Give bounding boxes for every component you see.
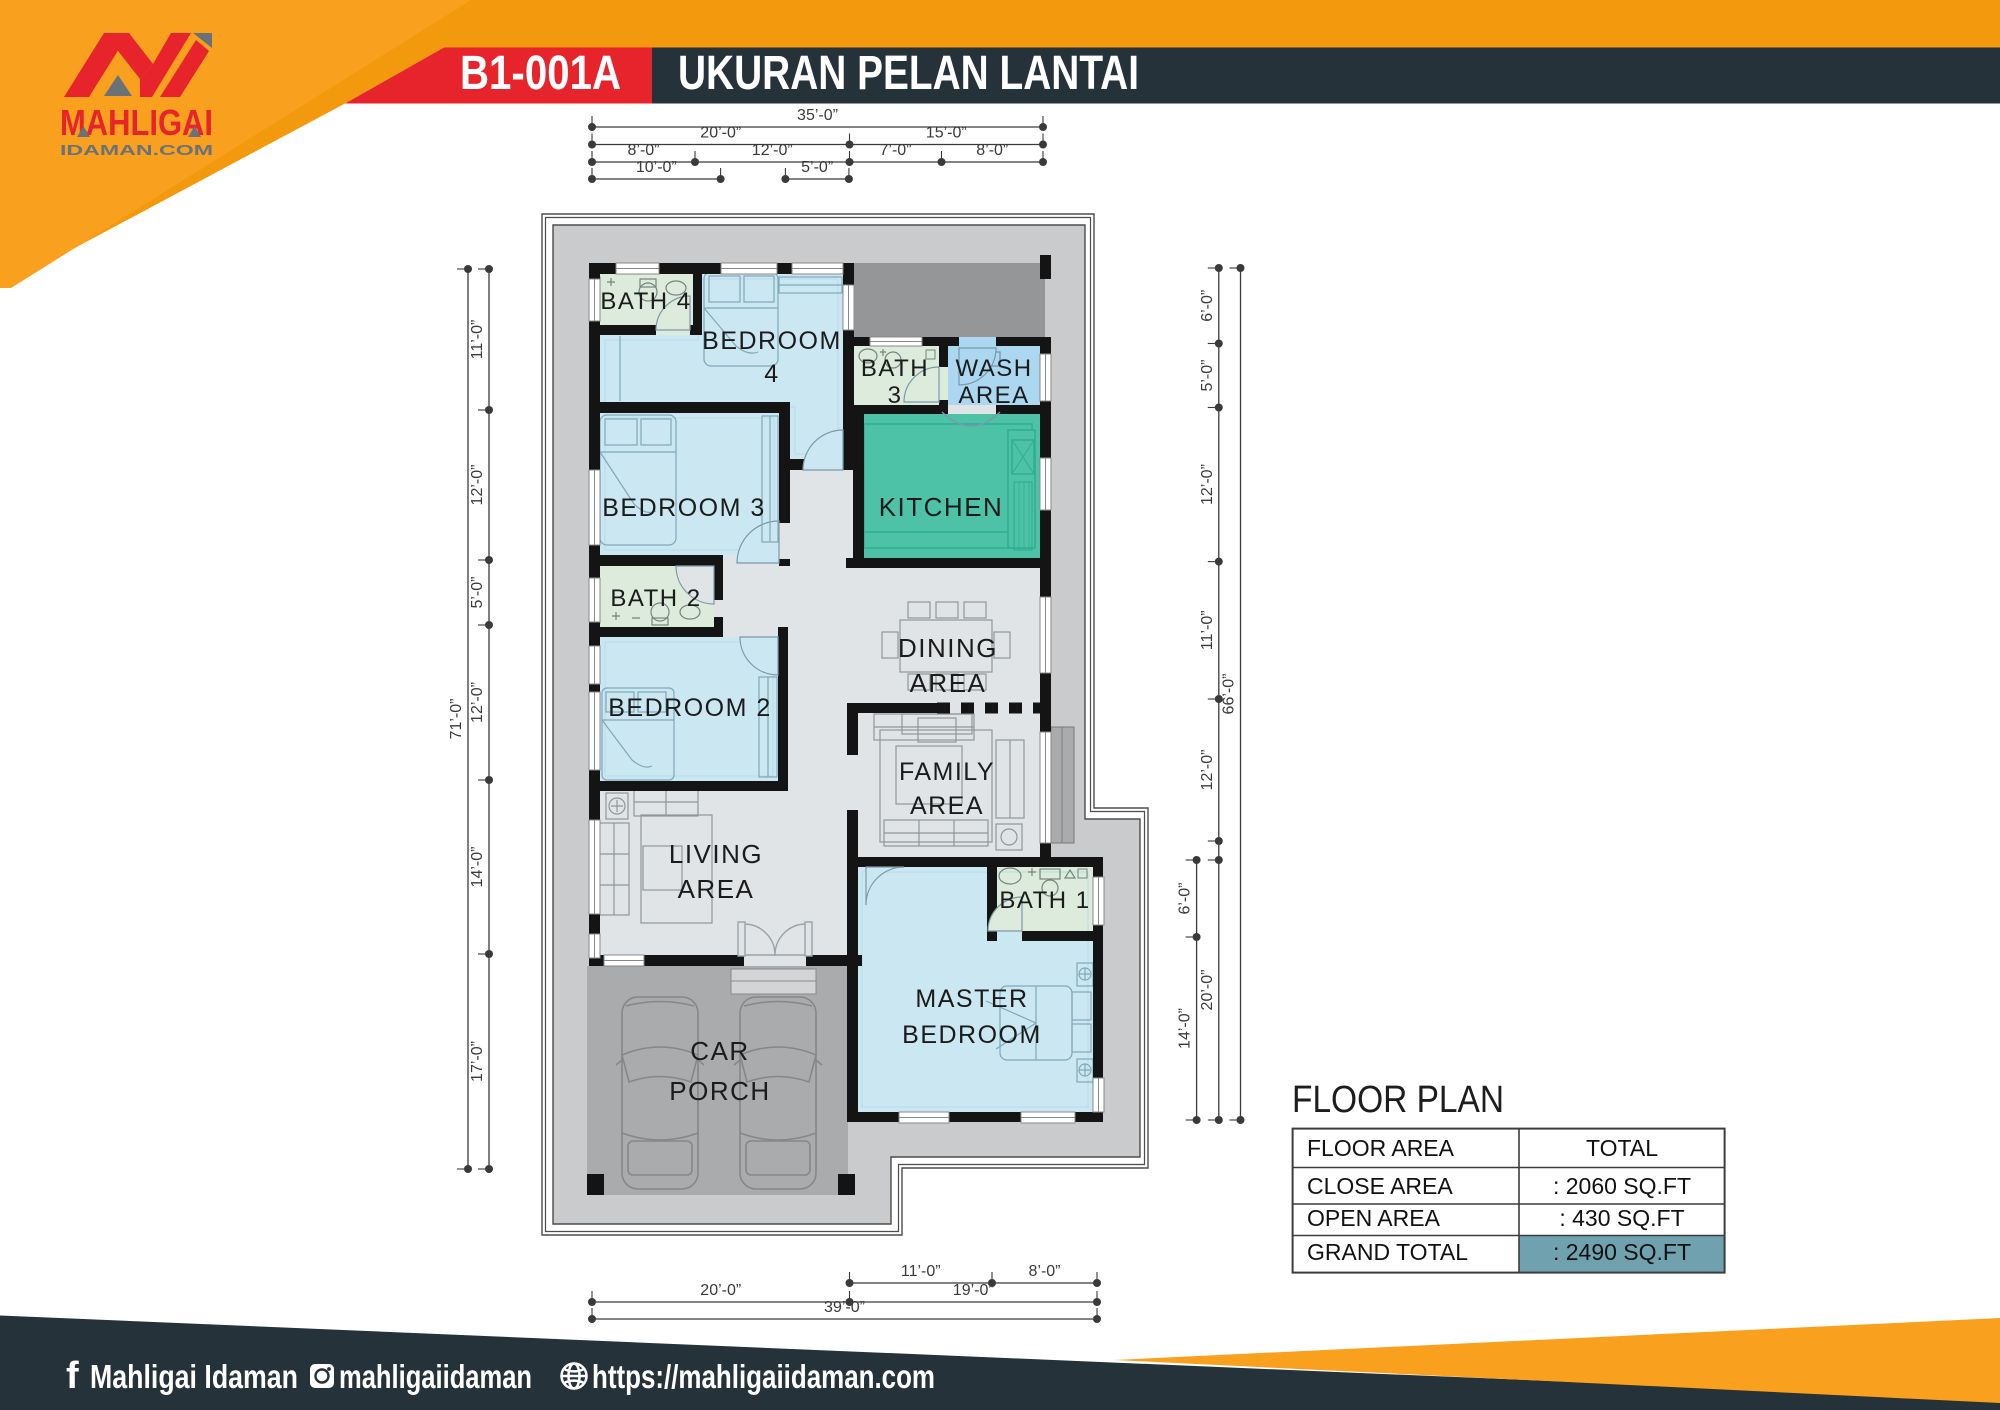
svg-text:GRAND TOTAL: GRAND TOTAL — [1307, 1239, 1468, 1265]
svg-text:BEDROOM 2: BEDROOM 2 — [608, 694, 772, 722]
svg-text:TOTAL: TOTAL — [1586, 1135, 1658, 1161]
svg-text:AREA: AREA — [910, 668, 987, 698]
svg-text:MASTER: MASTER — [915, 985, 1028, 1013]
svg-text:4: 4 — [764, 360, 779, 388]
svg-text:3: 3 — [888, 382, 903, 409]
svg-text:5’-0”: 5’-0” — [801, 159, 833, 176]
svg-text:19’-0”: 19’-0” — [953, 1282, 994, 1299]
svg-text:BATH 4: BATH 4 — [600, 288, 691, 315]
svg-text:UKURAN PELAN LANTAI: UKURAN PELAN LANTAI — [678, 47, 1139, 100]
svg-text:FLOOR PLAN: FLOOR PLAN — [1292, 1079, 1504, 1121]
svg-text:6’-0”: 6’-0” — [1177, 882, 1194, 914]
svg-text:5’-0”: 5’-0” — [1199, 359, 1216, 391]
svg-text:20’-0”: 20’-0” — [700, 125, 741, 142]
svg-text:20’-0”: 20’-0” — [700, 1282, 741, 1299]
svg-text:DINING: DINING — [898, 633, 998, 663]
svg-text:BATH 1: BATH 1 — [999, 887, 1090, 914]
svg-text:AREA: AREA — [910, 792, 984, 820]
svg-text:15’-0”: 15’-0” — [926, 125, 967, 142]
svg-text:8’-0”: 8’-0” — [1028, 1263, 1060, 1280]
svg-text:66’-0”: 66’-0” — [1221, 674, 1238, 715]
svg-text:14’-0”: 14’-0” — [469, 847, 486, 888]
svg-text:17’-0”: 17’-0” — [469, 1041, 486, 1082]
svg-text:PORCH: PORCH — [669, 1076, 770, 1106]
svg-text:CLOSE AREA: CLOSE AREA — [1307, 1173, 1453, 1199]
svg-text:AREA: AREA — [678, 874, 755, 904]
svg-text:39’-0”: 39’-0” — [824, 1299, 865, 1316]
svg-text:IDAMAN.COM: IDAMAN.COM — [60, 142, 213, 159]
svg-text:11’-0”: 11’-0” — [901, 1263, 941, 1280]
svg-text:AREA: AREA — [958, 382, 1029, 409]
svg-text:FLOOR AREA: FLOOR AREA — [1307, 1135, 1455, 1161]
svg-text:: 2490 SQ.FT: : 2490 SQ.FT — [1553, 1239, 1691, 1265]
svg-text:12’-0”: 12’-0” — [752, 142, 793, 159]
svg-text:20’-0”: 20’-0” — [1199, 970, 1216, 1011]
svg-text:Mahligai Idaman: Mahligai Idaman — [90, 1358, 298, 1395]
svg-text:10’-0”: 10’-0” — [636, 159, 677, 176]
svg-text:6’-0”: 6’-0” — [1199, 290, 1216, 322]
svg-text:12’-0”: 12’-0” — [469, 465, 486, 506]
svg-text:CAR: CAR — [690, 1036, 749, 1066]
svg-text:11’-0”: 11’-0” — [469, 320, 486, 360]
svg-text:https://mahligaiidaman.com: https://mahligaiidaman.com — [592, 1358, 935, 1395]
svg-text:WASH: WASH — [955, 355, 1032, 382]
svg-text:BEDROOM: BEDROOM — [702, 327, 842, 355]
svg-text:BATH: BATH — [861, 355, 929, 382]
svg-text:7’-0”: 7’-0” — [879, 142, 911, 159]
svg-text:LIVING: LIVING — [669, 839, 763, 869]
svg-text:OPEN AREA: OPEN AREA — [1307, 1205, 1441, 1231]
svg-text:5’-0”: 5’-0” — [469, 576, 486, 608]
svg-text:f: f — [66, 1355, 79, 1397]
svg-text:11’-0”: 11’-0” — [1199, 610, 1216, 650]
svg-text:BATH 2: BATH 2 — [610, 585, 701, 612]
svg-text:8’-0”: 8’-0” — [627, 142, 659, 159]
svg-text:FAMILY: FAMILY — [899, 758, 995, 786]
svg-text:8’-0”: 8’-0” — [976, 142, 1008, 159]
svg-text:12’-0”: 12’-0” — [469, 682, 486, 723]
svg-text:B1-001A: B1-001A — [460, 47, 621, 100]
svg-text:35’-0”: 35’-0” — [797, 107, 838, 124]
svg-text:12’-0”: 12’-0” — [1199, 750, 1216, 791]
svg-text:: 430 SQ.FT: : 430 SQ.FT — [1559, 1205, 1684, 1231]
svg-text:12’-0”: 12’-0” — [1199, 464, 1216, 505]
svg-text:KITCHEN: KITCHEN — [879, 492, 1004, 522]
svg-text:BEDROOM: BEDROOM — [902, 1021, 1042, 1049]
svg-text:mahligaiidaman: mahligaiidaman — [339, 1358, 532, 1395]
svg-text:14’-0”: 14’-0” — [1177, 1008, 1194, 1049]
svg-text:BEDROOM 3: BEDROOM 3 — [602, 494, 766, 522]
svg-text:71’-0”: 71’-0” — [448, 699, 465, 740]
svg-text:: 2060 SQ.FT: : 2060 SQ.FT — [1553, 1173, 1691, 1199]
